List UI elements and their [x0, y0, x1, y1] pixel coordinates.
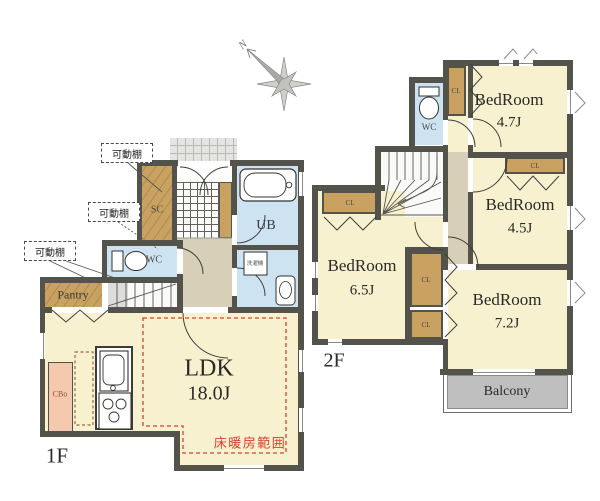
stairs-1f-landing: [108, 283, 128, 307]
sc-label: SC: [151, 205, 163, 216]
north-label: N: [236, 38, 249, 52]
floor2-label: 2F: [323, 350, 344, 373]
wall-segment: [40, 277, 177, 283]
wall-segment: [468, 152, 573, 158]
window: [40, 333, 45, 359]
floor-plan: 1F LDK 18.0J 床暖房範囲 Pantry WC SC UB CBo 洗…: [0, 0, 600, 501]
wall-segment: [468, 192, 473, 267]
closet-47-label: CL: [452, 87, 461, 95]
floor-heating-label: 床暖房範囲: [214, 433, 287, 452]
window: [299, 350, 304, 372]
movable-shelf-note-1: 可動棚: [101, 143, 153, 163]
door-opening: [468, 158, 473, 192]
kitchen-counter: [95, 346, 133, 430]
wall-segment: [230, 160, 304, 166]
movable-shelf-note-2: 可動棚: [88, 202, 140, 222]
entrance-porch: [170, 138, 237, 161]
wall-segment: [405, 247, 443, 252]
bedroom-47-label: BedRoom: [475, 90, 544, 110]
wall-segment: [443, 60, 448, 120]
window: [299, 408, 304, 432]
window: [519, 60, 533, 66]
compass-rose-icon: [247, 49, 311, 111]
window: [224, 465, 264, 471]
wall-segment: [409, 77, 415, 152]
wall-segment: [237, 245, 304, 250]
window: [567, 90, 573, 114]
wall-segment: [375, 146, 381, 220]
closet-a-label: CL: [422, 276, 431, 284]
bedroom-45-label: BedRoom: [486, 195, 555, 215]
bedroom-72-area: 7.2J: [495, 316, 520, 333]
movable-shelf-text: 可動棚: [112, 146, 142, 161]
window: [567, 206, 573, 230]
wc-2f-label: WC: [422, 122, 437, 132]
bedroom-45-area: 4.5J: [508, 221, 533, 238]
closet-b-label: CL: [422, 321, 431, 329]
wall-segment: [40, 431, 180, 437]
ldk-label: LDK: [184, 356, 233, 383]
wall-segment: [443, 145, 448, 222]
balcony-label: Balcony: [484, 384, 531, 400]
wall-segment: [312, 185, 385, 191]
shoe-cabinet: [219, 182, 232, 238]
door-opening: [52, 307, 108, 313]
ldk-area-label: 18.0J: [188, 383, 231, 406]
window: [312, 262, 318, 278]
entrance-doorway: [177, 166, 232, 182]
wall-segment: [177, 240, 183, 248]
movable-shelf-text: 可動棚: [35, 244, 65, 259]
cbo-label: CBo: [53, 390, 68, 399]
wall-segment: [172, 160, 177, 240]
room-toilet-1f: [107, 246, 177, 277]
ub-label: UB: [256, 218, 275, 234]
closet-45-label: CL: [531, 162, 540, 170]
wc-1f-label: WC: [146, 255, 162, 266]
window: [299, 172, 304, 196]
wall-segment: [108, 307, 183, 313]
pantry-label: Pantry: [57, 288, 88, 303]
door-opening: [232, 268, 237, 296]
window: [567, 280, 573, 306]
door-opening: [232, 215, 237, 245]
bedroom-47-area: 4.7J: [497, 115, 522, 132]
door-opening: [443, 120, 448, 145]
window: [328, 339, 342, 345]
room-shoe-closet: [142, 166, 172, 240]
floor1-label: 1F: [46, 444, 68, 469]
door-opening: [468, 118, 473, 145]
room-toilet-2f: [415, 83, 443, 145]
wall-segment: [468, 60, 473, 118]
closet-65-label: CL: [346, 199, 355, 207]
bedroom-65-area: 6.5J: [350, 283, 375, 300]
movable-shelf-text: 可動棚: [99, 205, 129, 220]
washer-label: 洗濯機: [247, 259, 264, 267]
genkan-tile: [177, 182, 219, 238]
window: [473, 369, 535, 375]
bedroom-72-label: BedRoom: [473, 290, 542, 310]
window: [312, 295, 318, 311]
wall-segment: [228, 307, 304, 313]
wall-segment: [405, 252, 410, 345]
wall-segment: [375, 146, 448, 152]
wall-segment: [232, 160, 237, 215]
room-ldk: [45, 313, 298, 431]
wall-segment: [102, 240, 177, 246]
door-opening: [443, 222, 448, 247]
door-opening: [183, 307, 228, 313]
bedroom-65-label: BedRoom: [328, 256, 397, 276]
wall-segment: [177, 274, 183, 307]
door-opening: [177, 248, 183, 274]
hall-1f: [177, 238, 232, 307]
movable-shelf-note-3: 可動棚: [24, 241, 76, 261]
door-opening: [448, 264, 476, 270]
wall-segment: [43, 307, 52, 313]
window: [499, 60, 513, 66]
